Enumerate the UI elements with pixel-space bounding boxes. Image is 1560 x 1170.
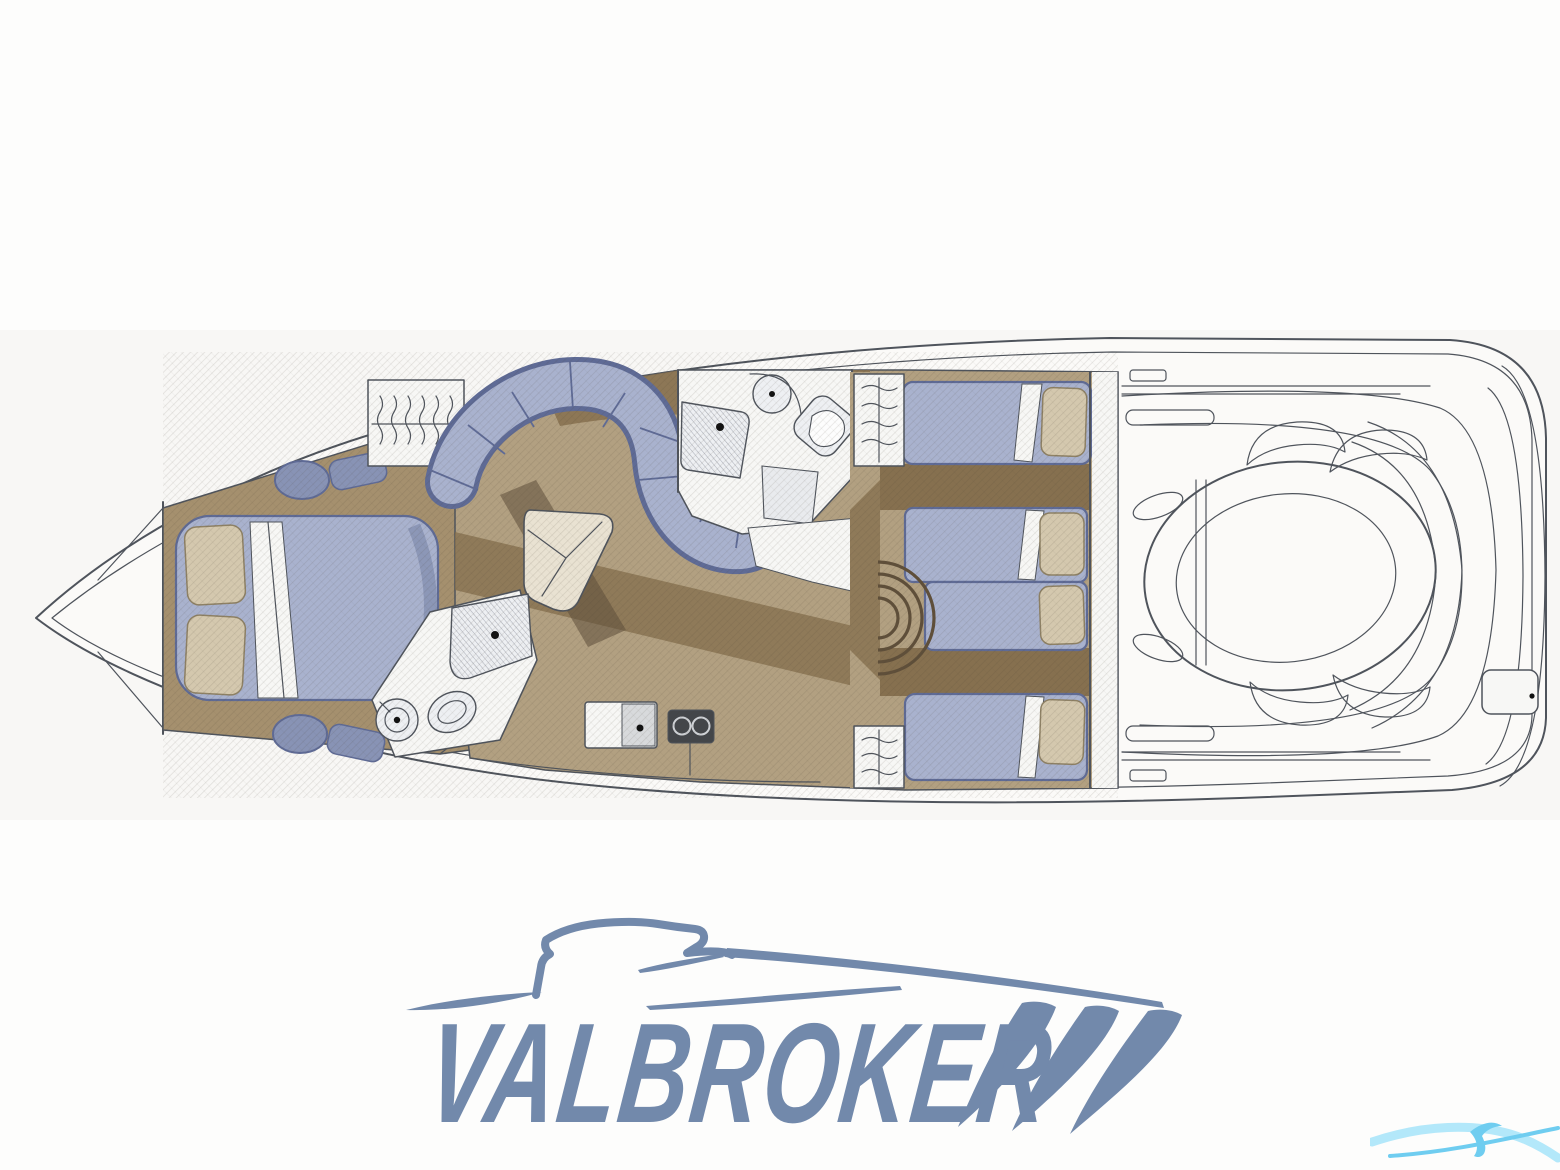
scan-texture: [163, 352, 1118, 798]
yacht-floorplan-diagram: [0, 330, 1560, 820]
scanned-yacht-listing-image: VALBROKER: [0, 0, 1560, 1170]
watermark-swoosh: [1370, 1112, 1560, 1170]
swim-platform: [1482, 670, 1538, 714]
logo-wordmark: VALBROKER: [420, 1003, 1060, 1145]
